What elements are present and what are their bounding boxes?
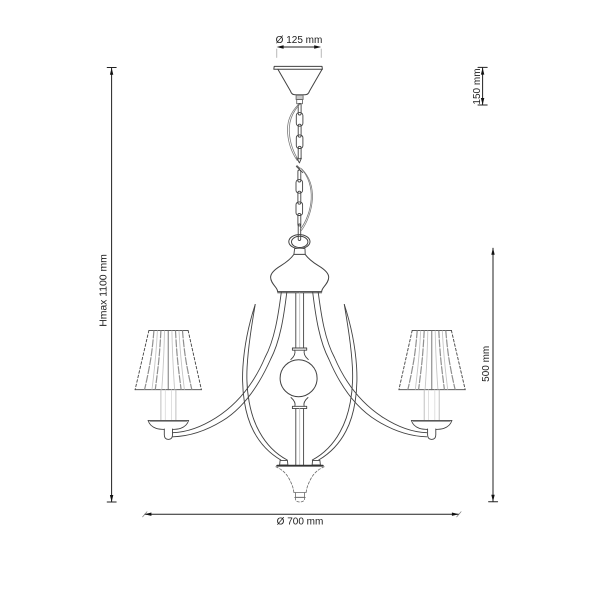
svg-text:Ø 125 mm: Ø 125 mm xyxy=(276,35,323,46)
svg-text:Ø 700 mm: Ø 700 mm xyxy=(277,517,324,528)
svg-text:500 mm: 500 mm xyxy=(481,346,492,382)
svg-text:Hmax 1100 mm: Hmax 1100 mm xyxy=(99,254,110,327)
